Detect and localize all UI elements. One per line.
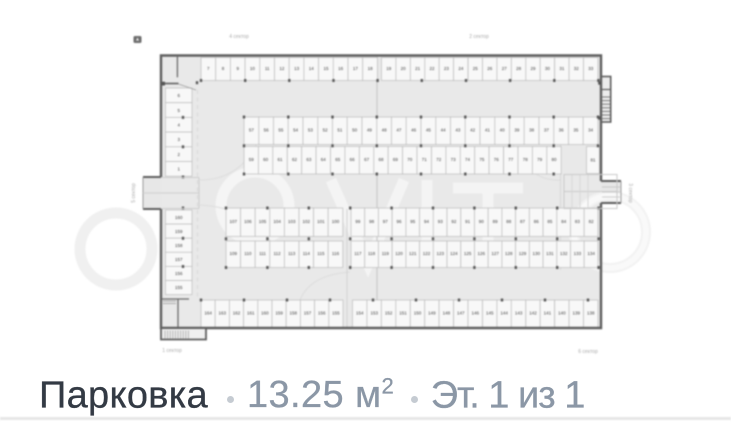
svg-text:68: 68 <box>378 157 384 162</box>
svg-text:37: 37 <box>544 128 550 133</box>
svg-text:155: 155 <box>175 285 183 290</box>
svg-text:21: 21 <box>415 66 421 71</box>
svg-text:90: 90 <box>479 219 485 224</box>
svg-text:54: 54 <box>293 128 299 133</box>
svg-text:157: 157 <box>175 257 183 262</box>
svg-text:30: 30 <box>545 66 551 71</box>
svg-text:119: 119 <box>382 251 390 256</box>
svg-text:118: 118 <box>368 251 376 256</box>
svg-text:66: 66 <box>350 157 356 162</box>
svg-text:61: 61 <box>277 157 283 162</box>
svg-text:158: 158 <box>175 243 183 248</box>
svg-text:78: 78 <box>523 157 529 162</box>
svg-text:24: 24 <box>458 66 464 71</box>
svg-text:36: 36 <box>559 128 565 133</box>
svg-text:152: 152 <box>385 311 393 316</box>
svg-text:74: 74 <box>465 157 471 162</box>
svg-text:84: 84 <box>561 219 567 224</box>
svg-text:110: 110 <box>244 251 252 256</box>
svg-text:18: 18 <box>368 66 374 71</box>
svg-text:112: 112 <box>274 251 282 256</box>
svg-text:70: 70 <box>407 157 413 162</box>
svg-text:51: 51 <box>337 128 343 133</box>
svg-text:120: 120 <box>395 251 403 256</box>
svg-text:28: 28 <box>516 66 522 71</box>
svg-text:100: 100 <box>332 219 340 224</box>
svg-text:156: 156 <box>175 271 183 276</box>
svg-text:160: 160 <box>261 311 269 316</box>
svg-text:113: 113 <box>288 251 296 256</box>
svg-text:44: 44 <box>441 128 447 133</box>
svg-text:87: 87 <box>520 219 526 224</box>
svg-text:157: 157 <box>304 311 312 316</box>
svg-text:140: 140 <box>558 311 566 316</box>
svg-text:154: 154 <box>356 311 364 316</box>
svg-text:80: 80 <box>551 157 557 162</box>
svg-text:41: 41 <box>485 128 491 133</box>
svg-text:19: 19 <box>386 66 392 71</box>
svg-text:141: 141 <box>544 311 552 316</box>
svg-text:95: 95 <box>410 219 416 224</box>
svg-text:155: 155 <box>332 311 340 316</box>
svg-text:143: 143 <box>515 311 523 316</box>
svg-text:15: 15 <box>323 66 329 71</box>
svg-text:72: 72 <box>436 157 442 162</box>
svg-text:50: 50 <box>352 128 358 133</box>
svg-text:103: 103 <box>288 219 296 224</box>
svg-text:10: 10 <box>250 66 256 71</box>
svg-text:134: 134 <box>587 251 595 256</box>
svg-text:31: 31 <box>559 66 565 71</box>
svg-text:126: 126 <box>478 251 486 256</box>
svg-text:29: 29 <box>530 66 536 71</box>
svg-text:104: 104 <box>273 219 281 224</box>
svg-text:129: 129 <box>519 251 527 256</box>
svg-text:91: 91 <box>465 219 471 224</box>
svg-text:92: 92 <box>451 219 457 224</box>
svg-text:96: 96 <box>396 219 402 224</box>
svg-text:1 сектор: 1 сектор <box>162 348 182 354</box>
svg-text:42: 42 <box>470 128 476 133</box>
svg-text:97: 97 <box>383 219 389 224</box>
svg-text:46: 46 <box>411 128 417 133</box>
svg-text:149: 149 <box>428 311 436 316</box>
svg-text:60: 60 <box>263 157 269 162</box>
svg-text:146: 146 <box>471 311 479 316</box>
svg-text:55: 55 <box>278 128 284 133</box>
svg-text:158: 158 <box>290 311 298 316</box>
svg-text:159: 159 <box>175 229 183 234</box>
svg-text:156: 156 <box>318 311 326 316</box>
svg-text:114: 114 <box>303 251 311 256</box>
svg-text:159: 159 <box>275 311 283 316</box>
svg-text:94: 94 <box>424 219 430 224</box>
svg-text:130: 130 <box>532 251 540 256</box>
svg-text:117: 117 <box>354 251 362 256</box>
svg-text:43: 43 <box>455 128 461 133</box>
svg-text:34: 34 <box>588 128 594 133</box>
svg-text:124: 124 <box>450 251 458 256</box>
svg-text:127: 127 <box>491 251 499 256</box>
svg-text:81: 81 <box>590 158 596 163</box>
svg-text:67: 67 <box>364 157 370 162</box>
svg-text:99: 99 <box>355 219 361 224</box>
svg-text:107: 107 <box>230 219 238 224</box>
svg-text:79: 79 <box>537 157 543 162</box>
svg-text:132: 132 <box>560 251 568 256</box>
svg-text:142: 142 <box>529 311 537 316</box>
svg-text:6 сектор: 6 сектор <box>578 349 598 355</box>
svg-text:145: 145 <box>486 311 494 316</box>
svg-text:125: 125 <box>464 251 472 256</box>
svg-text:76: 76 <box>494 157 500 162</box>
svg-text:2 сектор: 2 сектор <box>469 34 489 40</box>
svg-text:83: 83 <box>575 219 581 224</box>
svg-text:133: 133 <box>574 251 582 256</box>
svg-text:86: 86 <box>534 219 540 224</box>
svg-text:148: 148 <box>443 311 451 316</box>
svg-text:111: 111 <box>259 251 266 256</box>
svg-text:16: 16 <box>338 66 344 71</box>
svg-text:161: 161 <box>247 311 255 316</box>
svg-text:59: 59 <box>249 157 255 162</box>
svg-text:93: 93 <box>438 219 444 224</box>
svg-text:22: 22 <box>429 66 435 71</box>
svg-text:13: 13 <box>294 66 300 71</box>
svg-text:164: 164 <box>204 311 212 316</box>
svg-text:101: 101 <box>317 219 325 224</box>
svg-text:109: 109 <box>230 251 238 256</box>
svg-text:23: 23 <box>444 66 450 71</box>
svg-text:115: 115 <box>317 251 325 256</box>
svg-text:69: 69 <box>393 157 399 162</box>
svg-text:27: 27 <box>502 66 508 71</box>
svg-text:25: 25 <box>473 66 479 71</box>
svg-text:128: 128 <box>505 251 513 256</box>
svg-text:40: 40 <box>500 128 506 133</box>
svg-text:71: 71 <box>422 157 428 162</box>
svg-text:47: 47 <box>396 128 402 133</box>
svg-text:98: 98 <box>369 219 375 224</box>
svg-text:105: 105 <box>259 219 267 224</box>
svg-text:3 сектор: 3 сектор <box>627 183 633 203</box>
svg-text:20: 20 <box>401 66 407 71</box>
svg-text:138: 138 <box>587 311 595 316</box>
svg-text:52: 52 <box>323 128 329 133</box>
svg-text:11: 11 <box>265 66 270 71</box>
svg-text:45: 45 <box>426 128 432 133</box>
svg-text:82: 82 <box>589 219 595 224</box>
svg-text:49: 49 <box>367 128 373 133</box>
svg-text:12: 12 <box>279 66 285 71</box>
svg-text:88: 88 <box>506 219 512 224</box>
svg-text:77: 77 <box>508 157 514 162</box>
svg-text:139: 139 <box>573 311 581 316</box>
svg-text:35: 35 <box>573 128 579 133</box>
svg-text:102: 102 <box>303 219 311 224</box>
svg-text:57: 57 <box>249 128 255 133</box>
svg-text:5 сектор: 5 сектор <box>131 183 137 203</box>
svg-text:63: 63 <box>306 157 312 162</box>
svg-text:153: 153 <box>370 311 378 316</box>
svg-text:106: 106 <box>244 219 252 224</box>
svg-text:150: 150 <box>414 311 422 316</box>
svg-text:39: 39 <box>514 128 520 133</box>
svg-text:75: 75 <box>479 157 485 162</box>
svg-text:163: 163 <box>219 311 227 316</box>
svg-text:116: 116 <box>332 251 340 256</box>
svg-text:147: 147 <box>457 311 465 316</box>
svg-text:122: 122 <box>423 251 431 256</box>
svg-text:32: 32 <box>574 66 580 71</box>
svg-text:26: 26 <box>487 66 493 71</box>
svg-text:85: 85 <box>547 219 553 224</box>
svg-text:64: 64 <box>321 157 327 162</box>
svg-text:56: 56 <box>264 128 270 133</box>
svg-text:48: 48 <box>382 128 388 133</box>
svg-text:144: 144 <box>500 311 508 316</box>
svg-text:14: 14 <box>309 66 315 71</box>
svg-text:17: 17 <box>353 66 359 71</box>
svg-text:162: 162 <box>233 311 241 316</box>
svg-text:89: 89 <box>493 219 499 224</box>
svg-text:65: 65 <box>335 157 341 162</box>
svg-text:4 сектор: 4 сектор <box>229 34 249 40</box>
svg-text:123: 123 <box>436 251 444 256</box>
svg-text:73: 73 <box>451 157 457 162</box>
svg-text:131: 131 <box>546 251 554 256</box>
svg-text:151: 151 <box>399 311 407 316</box>
svg-text:160: 160 <box>175 215 183 220</box>
svg-text:121: 121 <box>409 251 417 256</box>
svg-text:53: 53 <box>308 128 314 133</box>
svg-text:33: 33 <box>588 66 594 71</box>
svg-text:38: 38 <box>529 128 535 133</box>
svg-text:62: 62 <box>292 157 298 162</box>
